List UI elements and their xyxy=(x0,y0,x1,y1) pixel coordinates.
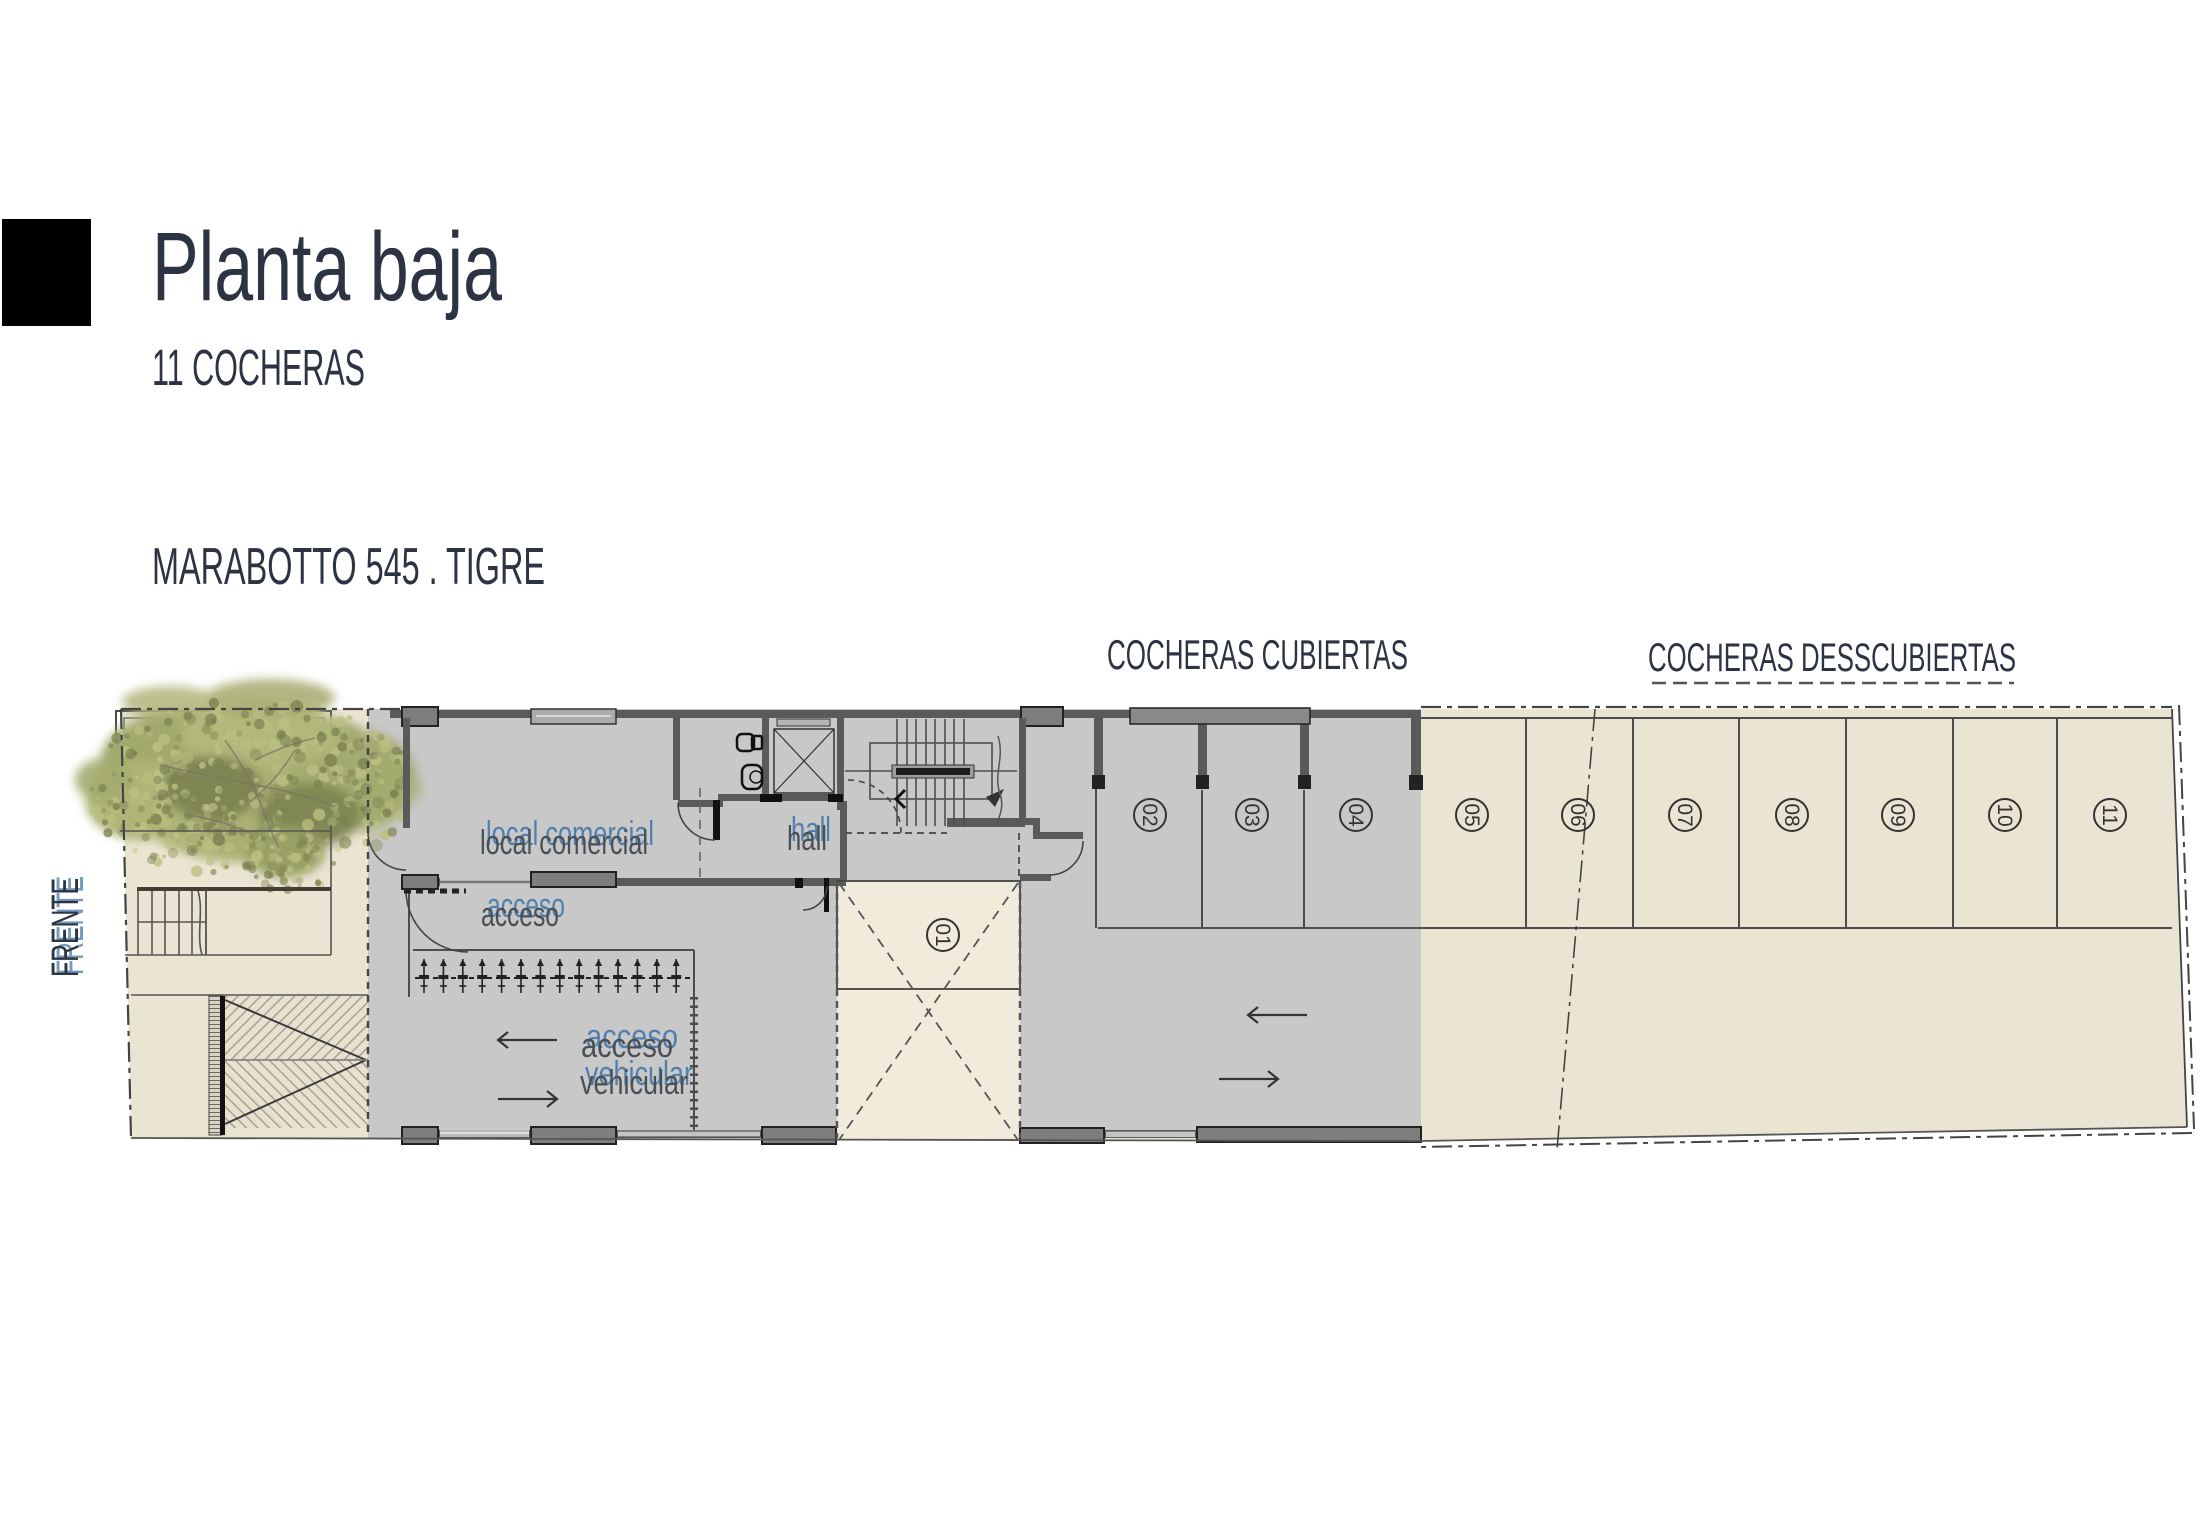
svg-text:local comercial: local comercial xyxy=(480,824,648,862)
svg-text:03: 03 xyxy=(1240,803,1263,826)
svg-text:vehicular: vehicular xyxy=(580,1064,688,1102)
svg-text:06: 06 xyxy=(1566,803,1589,826)
svg-text:Planta baja: Planta baja xyxy=(152,212,502,321)
svg-text:08: 08 xyxy=(1780,803,1803,826)
svg-text:11 COCHERAS: 11 COCHERAS xyxy=(152,339,365,396)
svg-text:acceso: acceso xyxy=(481,896,559,934)
svg-text:04: 04 xyxy=(1344,803,1367,827)
svg-text:FRENTE: FRENTE xyxy=(45,878,87,977)
svg-text:COCHERAS CUBIERTAS: COCHERAS CUBIERTAS xyxy=(1107,631,1408,678)
svg-text:05: 05 xyxy=(1460,803,1483,826)
svg-text:02: 02 xyxy=(1138,803,1161,826)
svg-text:hall: hall xyxy=(787,820,827,858)
svg-text:09: 09 xyxy=(1886,803,1909,826)
svg-text:MARABOTTO 545 . TIGRE: MARABOTTO 545 . TIGRE xyxy=(152,538,545,596)
svg-text:01: 01 xyxy=(931,923,954,946)
svg-text:07: 07 xyxy=(1673,803,1696,826)
svg-text:11: 11 xyxy=(2098,804,2121,826)
svg-text:COCHERAS DESSCUBIERTAS: COCHERAS DESSCUBIERTAS xyxy=(1648,636,2016,680)
svg-text:10: 10 xyxy=(1993,803,2016,826)
